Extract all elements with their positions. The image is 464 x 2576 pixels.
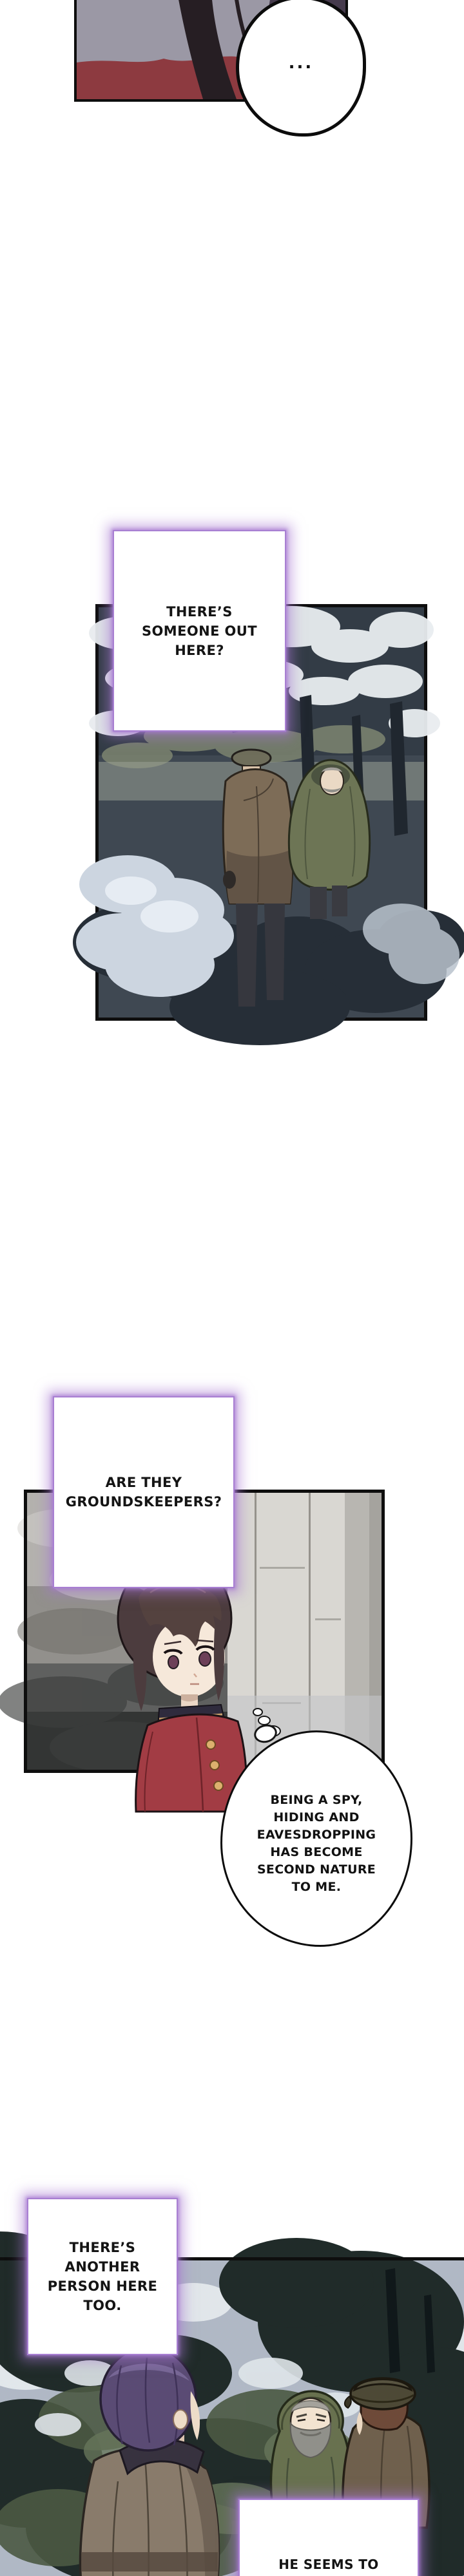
caption-line: THERE’S <box>166 602 233 621</box>
ellipsis-speech-bubble: ... <box>236 0 366 137</box>
thought-line: TO ME. <box>222 1879 411 1896</box>
thought-bubble: BEING A SPY, HIDING AND EAVESDROPPING HA… <box>220 1730 412 1947</box>
stone-pillar <box>227 1491 383 1772</box>
caption-line: PERSON HERE <box>48 2277 158 2296</box>
thought-line: BEING A SPY, <box>222 1792 411 1809</box>
caption-line: SOMEONE OUT <box>142 621 257 641</box>
caption-line: TOO. <box>83 2296 121 2315</box>
caption-line: ARE THEY <box>106 1473 182 1492</box>
caption-line: HERE? <box>175 641 224 660</box>
ellipsis-text: ... <box>289 53 314 73</box>
thought-line: HAS BECOME <box>222 1844 411 1861</box>
thought-line: HIDING AND <box>222 1809 411 1826</box>
thought-trail-dot-1 <box>253 1708 263 1716</box>
caption-line: ANOTHER <box>65 2257 140 2277</box>
caption-line: THERE’S <box>70 2238 136 2257</box>
caption-line: GROUNDSKEEPERS? <box>66 1492 222 1511</box>
thought-line: EAVESDROPPING <box>222 1826 411 1844</box>
thought-bubble-text: BEING A SPY, HIDING AND EAVESDROPPING HA… <box>222 1732 411 1896</box>
caption-line: HE SEEMS TO <box>278 2555 378 2574</box>
caption-box-3: THERE’S ANOTHER PERSON HERE TOO. <box>27 2198 178 2355</box>
thought-line: SECOND NATURE <box>222 1861 411 1879</box>
caption-box-2: ARE THEY GROUNDSKEEPERS? <box>53 1396 235 1588</box>
caption-box-4: HE SEEMS TO BE OF HIGHER <box>238 2499 419 2576</box>
caption-box-1: THERE’S SOMEONE OUT HERE? <box>113 530 286 732</box>
webtoon-page: ... THERE’S SOMEONE OUT HERE? <box>0 0 464 2576</box>
